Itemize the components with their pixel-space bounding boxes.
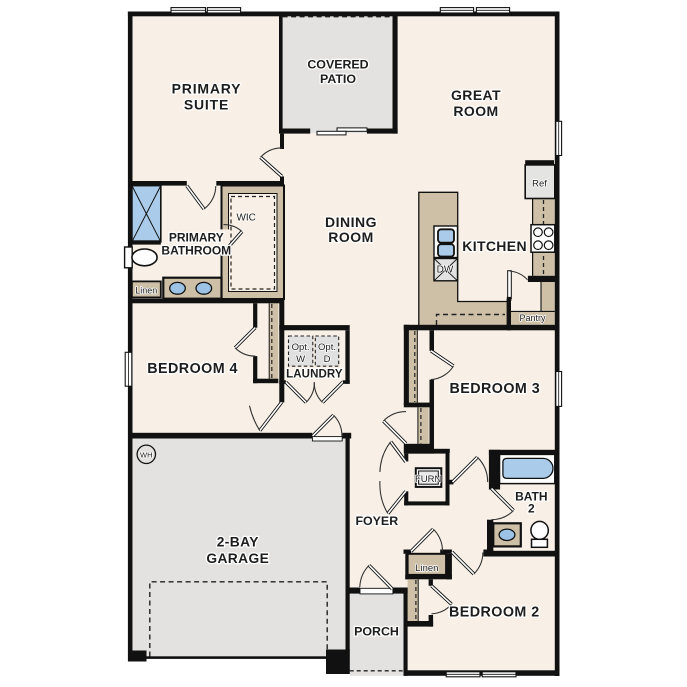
svg-text:WIC: WIC: [236, 213, 255, 224]
svg-text:D: D: [324, 354, 331, 365]
svg-text:Linen: Linen: [135, 286, 157, 296]
svg-text:Opt.: Opt.: [318, 342, 336, 353]
svg-text:PATIO: PATIO: [320, 72, 356, 86]
svg-text:DINING: DINING: [325, 214, 377, 230]
svg-text:Opt.: Opt.: [292, 342, 310, 353]
svg-text:ROOM: ROOM: [328, 229, 374, 245]
svg-text:DW: DW: [437, 264, 454, 275]
svg-text:BEDROOM 2: BEDROOM 2: [449, 605, 540, 621]
svg-text:GREAT: GREAT: [451, 87, 501, 103]
svg-text:GARAGE: GARAGE: [206, 551, 269, 566]
svg-text:BATHROOM: BATHROOM: [161, 244, 231, 258]
svg-text:Pantry: Pantry: [519, 313, 546, 323]
svg-text:PRIMARY: PRIMARY: [169, 231, 224, 245]
svg-text:BEDROOM 3: BEDROOM 3: [449, 381, 540, 397]
svg-text:LAUNDRY: LAUNDRY: [286, 368, 343, 380]
svg-text:PORCH: PORCH: [354, 624, 399, 638]
svg-text:2: 2: [528, 502, 535, 516]
svg-text:FURN: FURN: [415, 474, 442, 485]
svg-text:WH: WH: [140, 450, 153, 459]
svg-text:COVERED: COVERED: [307, 57, 368, 71]
svg-text:W: W: [296, 354, 305, 365]
svg-text:Linen: Linen: [415, 563, 438, 574]
svg-text:Ref: Ref: [532, 179, 547, 190]
svg-text:ROOM: ROOM: [453, 103, 498, 119]
svg-text:PRIMARY: PRIMARY: [172, 81, 242, 97]
svg-text:SUITE: SUITE: [184, 97, 229, 113]
svg-text:FOYER: FOYER: [355, 514, 398, 528]
svg-text:2-BAY: 2-BAY: [217, 534, 259, 549]
svg-text:KITCHEN: KITCHEN: [462, 238, 527, 254]
svg-text:BEDROOM 4: BEDROOM 4: [147, 361, 238, 377]
